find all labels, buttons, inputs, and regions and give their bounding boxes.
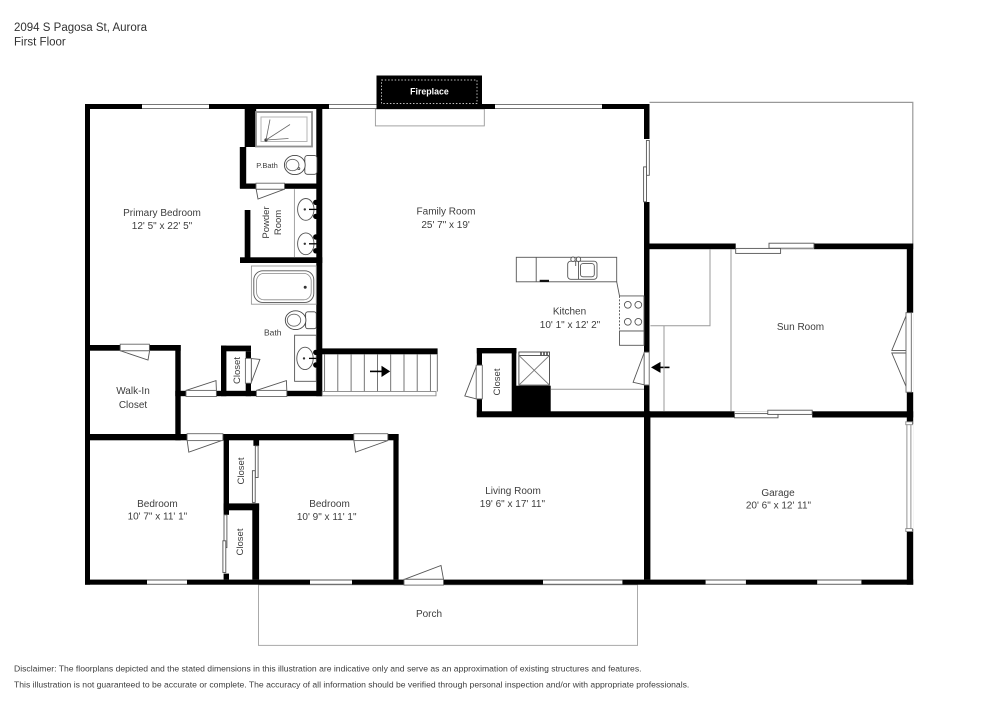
svg-text:10' 1" x 12' 2": 10' 1" x 12' 2" <box>540 320 601 331</box>
svg-text:Closet: Closet <box>232 357 243 384</box>
svg-text:Sun Room: Sun Room <box>777 322 824 333</box>
svg-text:First Floor: First Floor <box>14 37 66 49</box>
svg-text:Fireplace: Fireplace <box>410 87 449 97</box>
svg-text:Walk-In: Walk-In <box>116 386 150 397</box>
svg-text:25' 7" x 19': 25' 7" x 19' <box>421 220 470 231</box>
svg-text:Porch: Porch <box>416 609 442 620</box>
svg-text:Closet: Closet <box>492 368 503 395</box>
svg-text:10' 9" x 11' 1": 10' 9" x 11' 1" <box>297 512 357 523</box>
svg-text:Living Room: Living Room <box>485 486 541 497</box>
svg-text:12' 5" x 22' 5": 12' 5" x 22' 5" <box>132 221 193 232</box>
svg-text:20' 6" x 12' 11": 20' 6" x 12' 11" <box>746 500 812 511</box>
svg-text:Family Room: Family Room <box>417 207 476 218</box>
svg-text:PowderRoom: PowderRoom <box>261 206 284 238</box>
svg-text:Primary Bedroom: Primary Bedroom <box>123 208 201 219</box>
svg-text:19' 6" x 17' 11": 19' 6" x 17' 11" <box>480 499 546 510</box>
svg-text:Garage: Garage <box>761 488 795 499</box>
svg-text:Disclaimer: The floorplans dep: Disclaimer: The floorplans depicted and … <box>14 664 642 674</box>
svg-text:Bath: Bath <box>264 328 282 338</box>
svg-text:Closet: Closet <box>119 400 148 411</box>
svg-text:2094 S Pagosa St, Aurora: 2094 S Pagosa St, Aurora <box>14 22 148 34</box>
svg-text:Bedroom: Bedroom <box>137 499 178 510</box>
svg-text:Kitchen: Kitchen <box>553 307 586 318</box>
svg-text:10' 7" x 11' 1": 10' 7" x 11' 1" <box>128 512 188 523</box>
svg-text:Bedroom: Bedroom <box>309 499 350 510</box>
svg-text:Closet: Closet <box>236 457 247 484</box>
svg-text:Closet: Closet <box>235 528 246 555</box>
svg-text:P.Bath: P.Bath <box>256 161 278 170</box>
svg-text:This illustration is not guara: This illustration is not guaranteed to b… <box>14 679 689 689</box>
